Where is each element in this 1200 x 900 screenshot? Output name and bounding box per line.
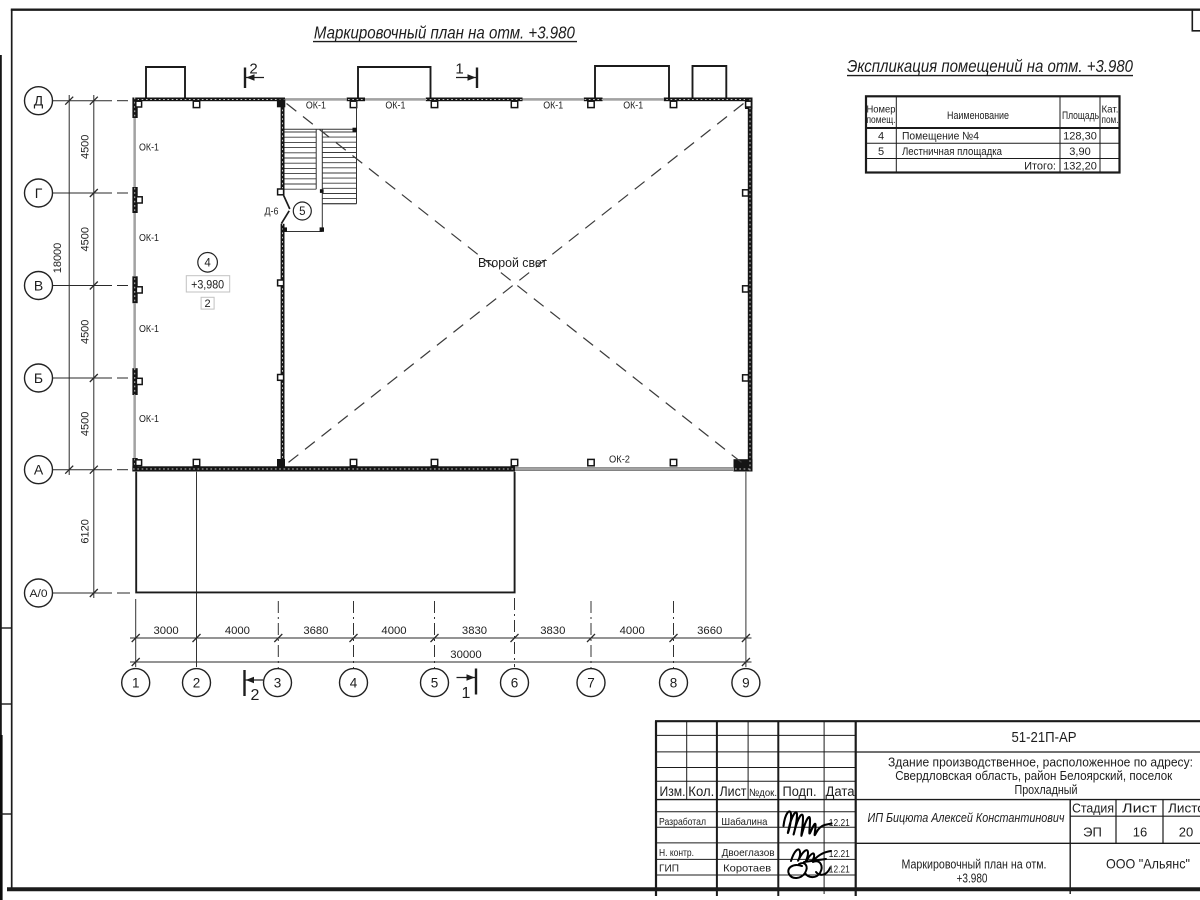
svg-text:Коротаев: Коротаев bbox=[723, 863, 771, 875]
svg-text:Помещение №4: Помещение №4 bbox=[902, 131, 979, 143]
svg-text:5: 5 bbox=[431, 676, 439, 691]
svg-text:8: 8 bbox=[670, 676, 678, 691]
svg-text:ИП Бицюта Алексей Константинов: ИП Бицюта Алексей Константинович bbox=[868, 810, 1065, 825]
svg-text:3660: 3660 bbox=[697, 625, 722, 637]
svg-text:ГИП: ГИП bbox=[659, 863, 679, 875]
svg-text:4000: 4000 bbox=[381, 625, 406, 637]
svg-text:ОК-1: ОК-1 bbox=[139, 323, 159, 335]
svg-text:Подп.: Подп. bbox=[783, 784, 817, 799]
svg-text:Изм.: Изм. bbox=[660, 784, 686, 799]
svg-text:3: 3 bbox=[274, 676, 282, 691]
svg-text:№док.: №док. bbox=[749, 787, 777, 799]
svg-text:2: 2 bbox=[249, 61, 257, 78]
svg-text:Дата: Дата bbox=[826, 784, 855, 799]
svg-text:12.21: 12.21 bbox=[829, 848, 850, 860]
svg-text:9: 9 bbox=[742, 676, 750, 691]
svg-text:Маркировочный план на отм.: Маркировочный план на отм. bbox=[902, 858, 1047, 872]
svg-text:+3.980: +3.980 bbox=[957, 872, 988, 886]
svg-text:4: 4 bbox=[350, 676, 358, 691]
svg-text:Лист: Лист bbox=[1122, 801, 1157, 816]
svg-text:4500: 4500 bbox=[80, 412, 92, 436]
svg-text:4: 4 bbox=[878, 131, 884, 143]
svg-text:5: 5 bbox=[878, 146, 884, 158]
svg-text:4: 4 bbox=[204, 258, 211, 270]
svg-text:Площадь: Площадь bbox=[1062, 110, 1099, 122]
svg-text:Г: Г bbox=[35, 185, 43, 201]
svg-text:4000: 4000 bbox=[225, 625, 250, 637]
svg-text:ОК-1: ОК-1 bbox=[623, 100, 643, 112]
svg-text:Н. контр.: Н. контр. bbox=[659, 847, 694, 859]
svg-text:Второй свет: Второй свет bbox=[478, 255, 547, 270]
svg-text:А/0: А/0 bbox=[30, 588, 48, 600]
svg-text:А: А bbox=[34, 462, 44, 478]
svg-text:Шабалина: Шабалина bbox=[721, 816, 767, 828]
svg-text:+3,980: +3,980 bbox=[191, 277, 224, 291]
svg-text:3000: 3000 bbox=[154, 625, 179, 637]
svg-text:Номер: Номер bbox=[867, 105, 896, 116]
svg-text:ОК-1: ОК-1 bbox=[139, 413, 159, 425]
svg-text:3680: 3680 bbox=[303, 625, 328, 637]
svg-text:1: 1 bbox=[462, 685, 471, 702]
svg-text:ОК-1: ОК-1 bbox=[139, 142, 159, 154]
svg-text:4000: 4000 bbox=[620, 625, 645, 637]
svg-text:4500: 4500 bbox=[80, 320, 92, 344]
svg-text:2: 2 bbox=[204, 298, 210, 310]
svg-text:Экспликация помещений на отм.: Экспликация помещений на отм. +3.980 bbox=[847, 56, 1133, 76]
svg-text:Лестничная площадка: Лестничная площадка bbox=[902, 146, 1003, 158]
svg-text:ОК-1: ОК-1 bbox=[385, 100, 405, 112]
svg-text:Маркировочный план на отм. +3.: Маркировочный план на отм. +3.980 bbox=[314, 23, 575, 43]
svg-text:ОК-1: ОК-1 bbox=[306, 100, 326, 112]
svg-text:Свердловская область, район Бе: Свердловская область, район Белоярский, … bbox=[895, 768, 1172, 783]
svg-text:помещ.: помещ. bbox=[867, 115, 896, 126]
svg-text:Разработал: Разработал bbox=[659, 816, 706, 828]
svg-text:ОК-1: ОК-1 bbox=[139, 232, 159, 244]
svg-text:Д: Д bbox=[34, 93, 44, 109]
svg-text:ЭП: ЭП bbox=[1083, 825, 1102, 840]
svg-text:4500: 4500 bbox=[80, 135, 92, 159]
svg-text:Кат.: Кат. bbox=[1102, 105, 1119, 116]
svg-text:132,20: 132,20 bbox=[1063, 160, 1097, 172]
svg-text:2: 2 bbox=[251, 687, 260, 704]
svg-text:7: 7 bbox=[587, 676, 595, 691]
svg-text:Лист: Лист bbox=[720, 784, 747, 799]
svg-text:Д-6: Д-6 bbox=[265, 206, 279, 218]
svg-text:2: 2 bbox=[193, 676, 201, 691]
svg-text:Прохладный: Прохладный bbox=[1015, 782, 1078, 797]
svg-text:30000: 30000 bbox=[450, 649, 481, 661]
svg-text:1: 1 bbox=[455, 61, 463, 78]
svg-text:Двоеглазов: Двоеглазов bbox=[722, 847, 775, 859]
svg-text:12.21: 12.21 bbox=[829, 864, 850, 876]
svg-text:3830: 3830 bbox=[462, 625, 487, 637]
svg-text:16: 16 bbox=[1133, 825, 1147, 840]
svg-text:Листов: Листов bbox=[1168, 801, 1200, 816]
svg-text:пом.: пом. bbox=[1102, 115, 1119, 126]
svg-text:Б: Б bbox=[34, 370, 43, 386]
svg-text:18000: 18000 bbox=[52, 243, 64, 274]
svg-text:ОК-2: ОК-2 bbox=[609, 453, 630, 465]
svg-text:6: 6 bbox=[511, 676, 519, 691]
svg-text:4500: 4500 bbox=[80, 227, 92, 251]
svg-text:3,90: 3,90 bbox=[1069, 146, 1090, 158]
svg-text:Итого:: Итого: bbox=[1024, 160, 1056, 172]
svg-text:5: 5 bbox=[299, 206, 305, 218]
svg-text:6120: 6120 bbox=[80, 519, 92, 543]
svg-text:Стадия: Стадия bbox=[1072, 801, 1114, 816]
svg-text:В: В bbox=[34, 278, 43, 294]
svg-text:1: 1 bbox=[132, 676, 140, 691]
svg-text:128,30: 128,30 bbox=[1063, 131, 1097, 143]
svg-text:ОК-1: ОК-1 bbox=[543, 100, 563, 112]
svg-text:20: 20 bbox=[1179, 825, 1193, 840]
svg-text:Кол.: Кол. bbox=[688, 784, 714, 799]
svg-text:3830: 3830 bbox=[540, 625, 565, 637]
svg-text:51-21П-АР: 51-21П-АР bbox=[1012, 730, 1077, 746]
svg-text:ООО "Альянс": ООО "Альянс" bbox=[1106, 856, 1190, 872]
svg-text:Наименование: Наименование bbox=[947, 110, 1009, 122]
